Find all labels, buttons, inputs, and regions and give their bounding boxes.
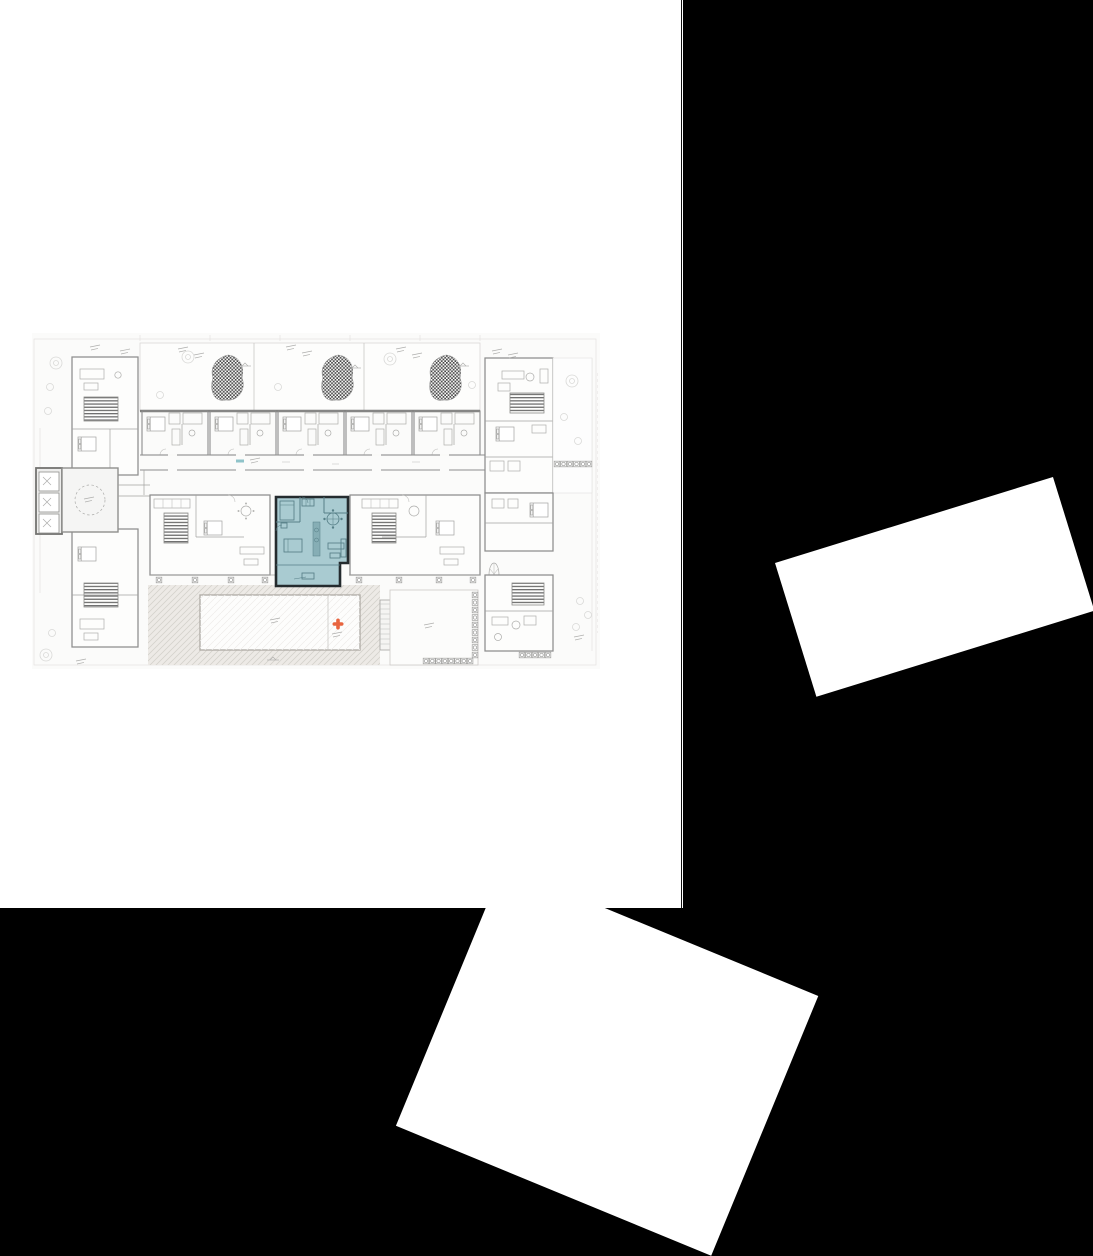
floor-plan — [32, 333, 600, 669]
page-edge-highlight — [682, 0, 683, 908]
overlay-card-bottom — [396, 866, 818, 1256]
lower-right-unit — [349, 495, 480, 583]
planting-blob — [322, 355, 354, 400]
document-page — [0, 0, 682, 908]
overlay-card-right — [775, 477, 1093, 697]
viewer-canvas — [0, 0, 1093, 1256]
stairs-lower-right-unit — [372, 513, 396, 543]
corridor-marker — [236, 460, 244, 463]
planting-blob — [430, 355, 462, 400]
stairs-lower-left-unit — [164, 513, 188, 543]
stairs-lower-left — [84, 583, 118, 607]
planting-blob — [212, 355, 244, 400]
stairs-upper-right — [510, 393, 544, 413]
pool-terrace — [148, 585, 394, 665]
stairs-lower-right — [512, 583, 544, 605]
highlighted-unit[interactable] — [276, 497, 348, 586]
kitchen-counter — [313, 522, 320, 556]
top-terraces — [140, 343, 480, 411]
stairs-upper-left — [84, 397, 118, 421]
lower-left-unit — [150, 495, 275, 583]
